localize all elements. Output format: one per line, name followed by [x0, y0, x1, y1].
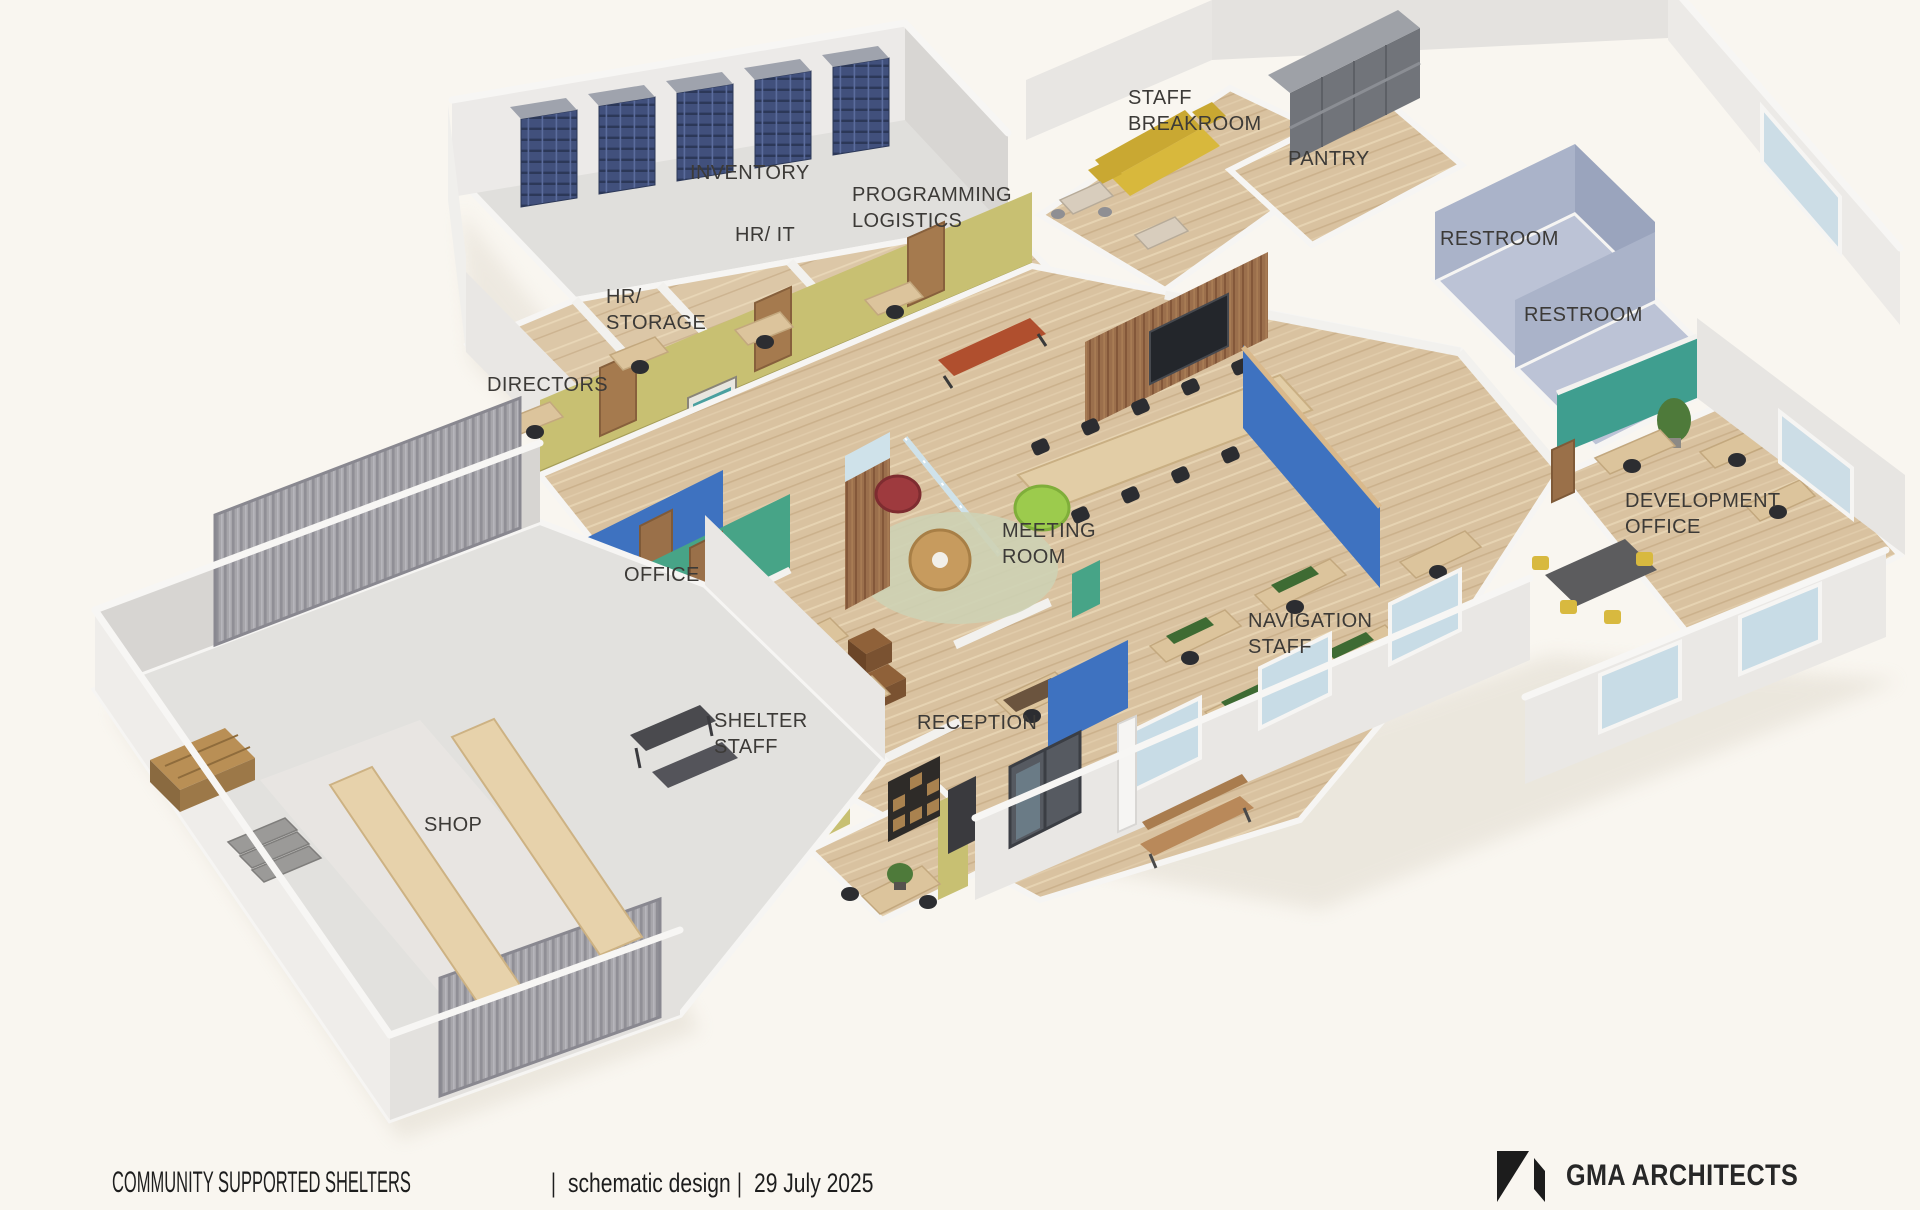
red-lounge-chair — [876, 476, 920, 512]
separator: | — [737, 1168, 742, 1199]
titleblock: COMMUNITY SUPPORTED SHELTERS | schematic… — [112, 1166, 861, 1200]
suite-plant — [887, 863, 913, 885]
firm-name: GMA ARCHITECTS — [1566, 1159, 1798, 1193]
gma-logo-mark — [1494, 1148, 1550, 1204]
sheet-date: 29 July 2025 — [754, 1168, 873, 1199]
dev-door — [1552, 440, 1574, 502]
project-title: COMMUNITY SUPPORTED SHELTERS — [112, 1166, 411, 1200]
isometric-floor-plan — [0, 0, 1920, 1210]
brand-block: GMA ARCHITECTS — [1494, 1148, 1842, 1204]
lime-lounge-chair — [1015, 486, 1069, 530]
phase-label: schematic design — [568, 1168, 731, 1199]
entry-pillar — [1118, 716, 1136, 832]
presentation-sheet: INVENTORY HR/ IT PROGRAMMING LOGISTICS H… — [0, 0, 1920, 1210]
separator: | — [551, 1168, 556, 1199]
